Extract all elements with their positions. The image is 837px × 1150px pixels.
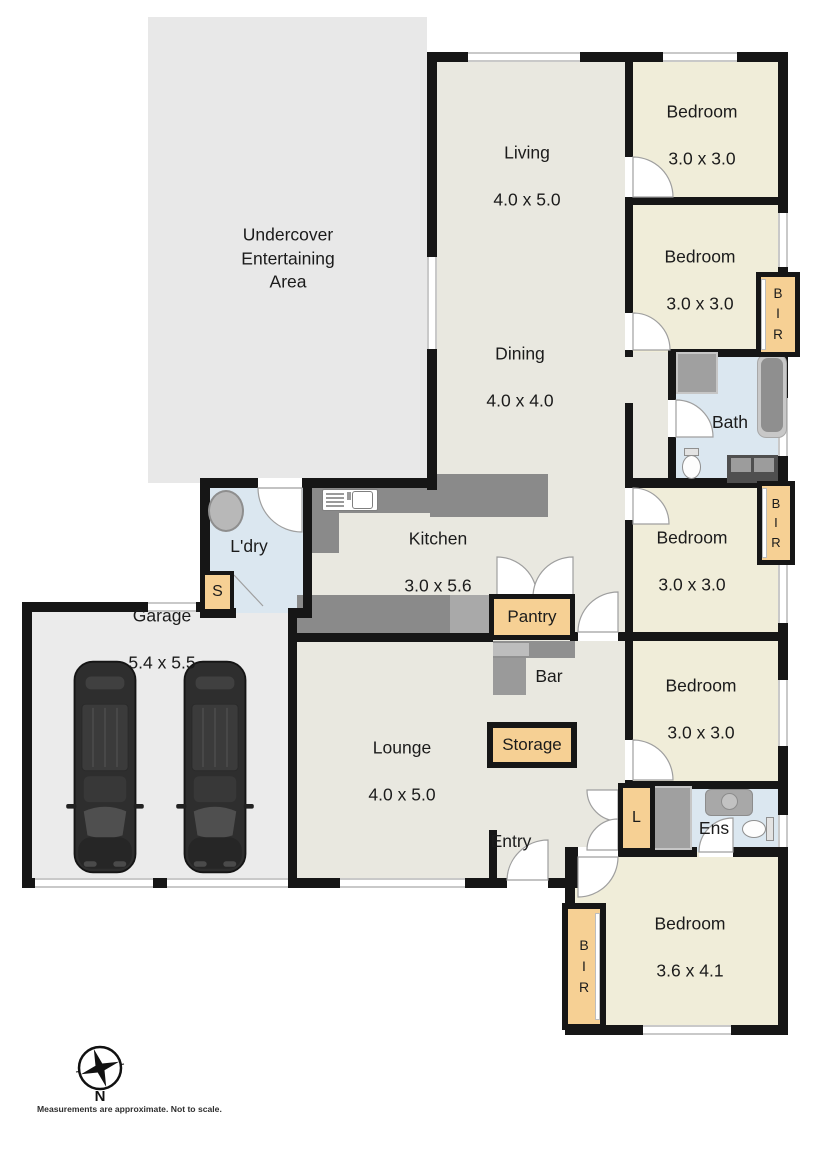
- linen-closet-label: L: [632, 809, 641, 827]
- lounge-label: Lounge 4.0 x 5.0: [368, 713, 435, 830]
- floor-plan: Pantry Storage S L B I R B I R B I R: [0, 0, 837, 1150]
- bir-closet-bedroom5: B I R: [562, 903, 606, 1030]
- bir-closet-bedroom2: B I R: [756, 272, 800, 357]
- bedroom1-label: Bedroom 3.0 x 3.0: [666, 77, 737, 194]
- room-name: Dining: [486, 343, 553, 366]
- laundry-label: L'dry: [230, 512, 267, 582]
- pantry-closet: Pantry: [489, 594, 575, 640]
- pantry-door-right-icon: [533, 557, 573, 597]
- linen-closet: L: [618, 783, 655, 853]
- ensuite-label: Ens: [699, 794, 729, 864]
- bir-label: B I R: [773, 284, 783, 345]
- room-name: Living: [493, 142, 560, 165]
- room-name: Lounge: [368, 737, 435, 760]
- compass-icon: [60, 1035, 140, 1095]
- room-name: Bedroom: [666, 101, 737, 124]
- bath-label: Bath: [712, 388, 748, 458]
- linen-door-icon: [587, 790, 618, 821]
- room-name: Kitchen: [404, 528, 471, 551]
- bir-closet-bedroom3: B I R: [757, 481, 795, 565]
- room-name: Ens: [699, 817, 729, 840]
- room-name: Bedroom: [656, 527, 727, 550]
- kitchen-label: Kitchen 3.0 x 5.6: [404, 504, 471, 621]
- room-dims: 3.0 x 3.0: [664, 293, 735, 316]
- room-dims: 4.0 x 5.0: [493, 189, 560, 212]
- room-dims: 3.0 x 3.0: [665, 722, 736, 745]
- sliding-door-icon: [761, 279, 766, 350]
- room-dims: 5.4 x 5.5: [128, 652, 195, 675]
- hall-door-icon: [578, 592, 618, 632]
- bedroom2-label: Bedroom 3.0 x 3.0: [664, 222, 735, 339]
- bedroom3-label: Bedroom 3.0 x 3.0: [656, 503, 727, 620]
- dining-label: Dining 4.0 x 4.0: [486, 319, 553, 436]
- room-dims: 3.0 x 3.0: [666, 148, 737, 171]
- bedroom5-label: Bedroom 3.6 x 4.1: [654, 889, 725, 1006]
- room-name: Bedroom: [654, 913, 725, 936]
- bir-label: B I R: [579, 935, 589, 998]
- bedroom4-label: Bedroom 3.0 x 3.0: [665, 651, 736, 768]
- garage-label: Garage 5.4 x 5.5: [128, 581, 195, 698]
- room-dims: 3.6 x 4.1: [654, 960, 725, 983]
- bar-label: Bar: [535, 642, 562, 712]
- compass-north-label: N: [95, 1088, 106, 1105]
- undercover-area-label: Undercover Entertaining Area: [241, 200, 334, 317]
- pantry-label: Pantry: [507, 607, 556, 627]
- storage-label: Storage: [502, 735, 562, 755]
- room-name: Garage: [128, 605, 195, 628]
- store-closet: S: [201, 571, 234, 613]
- store-closet-label: S: [212, 583, 223, 601]
- room-dims: 3.0 x 5.6: [404, 575, 471, 598]
- storage-closet: Storage: [487, 722, 577, 768]
- linen-door2-icon: [587, 819, 618, 850]
- pantry-door-left-icon: [497, 557, 537, 597]
- room-name: Undercover Entertaining Area: [241, 224, 334, 294]
- room-name: L'dry: [230, 535, 267, 558]
- room-name: Bedroom: [665, 675, 736, 698]
- room-name: Bath: [712, 411, 748, 434]
- room-name: Bedroom: [664, 246, 735, 269]
- sliding-door-icon: [762, 488, 767, 558]
- room-name: Entry: [491, 830, 532, 853]
- bir-label: B I R: [771, 494, 780, 553]
- entry-label: Entry: [491, 807, 532, 877]
- room-name: Bar: [535, 665, 562, 688]
- bath-door-icon: [676, 400, 713, 437]
- sliding-door-icon: [595, 913, 600, 1020]
- room-dims: 4.0 x 4.0: [486, 390, 553, 413]
- bedroom5-door-icon: [578, 857, 618, 897]
- room-dims: 3.0 x 3.0: [656, 574, 727, 597]
- disclaimer-text: Measurements are approximate. Not to sca…: [37, 1104, 222, 1114]
- room-dims: 4.0 x 5.0: [368, 784, 435, 807]
- living-label: Living 4.0 x 5.0: [493, 118, 560, 235]
